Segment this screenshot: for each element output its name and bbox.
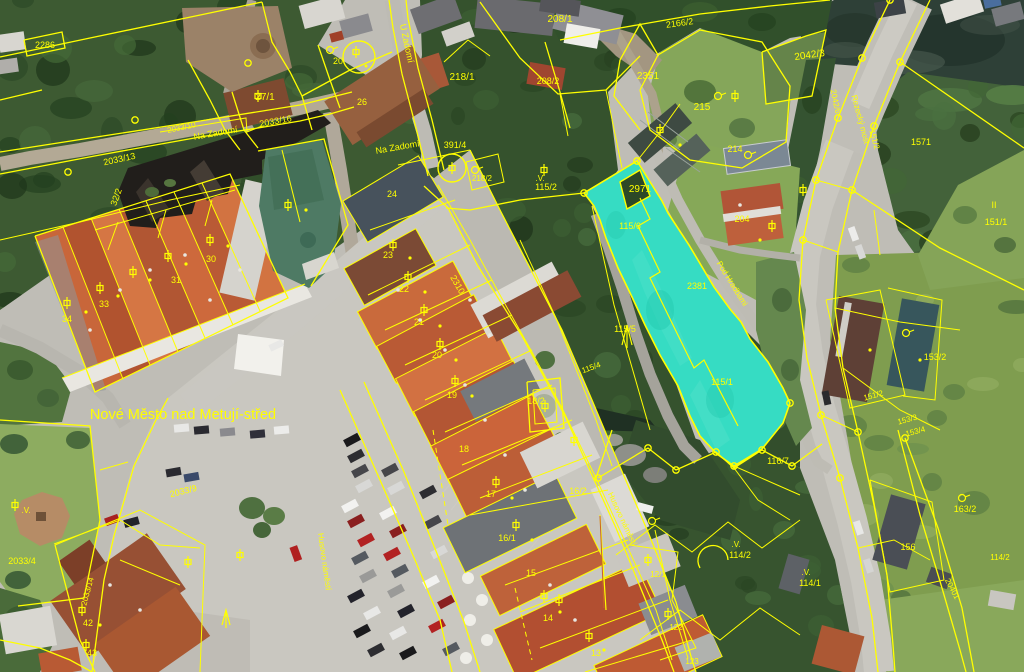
svg-text:.V.: .V. bbox=[21, 506, 30, 515]
svg-text:204: 204 bbox=[734, 214, 749, 224]
svg-text:20: 20 bbox=[333, 56, 343, 66]
svg-text:21: 21 bbox=[414, 317, 424, 327]
svg-text:163/2: 163/2 bbox=[954, 504, 977, 514]
svg-text:18: 18 bbox=[459, 444, 469, 454]
svg-text:16/2: 16/2 bbox=[569, 486, 587, 496]
svg-text:18/2: 18/2 bbox=[527, 396, 545, 406]
svg-text:27/1: 27/1 bbox=[255, 92, 275, 103]
svg-text:2971: 2971 bbox=[629, 184, 652, 195]
svg-text:2351: 2351 bbox=[637, 71, 660, 82]
svg-text:14: 14 bbox=[543, 613, 553, 623]
svg-text:122: 122 bbox=[669, 623, 683, 632]
svg-text:16/1: 16/1 bbox=[498, 533, 516, 543]
svg-text:22: 22 bbox=[399, 284, 409, 294]
svg-text:12/1: 12/1 bbox=[650, 570, 666, 579]
svg-text:17: 17 bbox=[486, 489, 496, 499]
svg-text:214: 214 bbox=[727, 144, 742, 154]
svg-text:31: 31 bbox=[171, 275, 181, 285]
svg-text:15: 15 bbox=[526, 568, 536, 578]
svg-text:33: 33 bbox=[99, 299, 109, 309]
svg-text:115/6: 115/6 bbox=[619, 221, 641, 231]
svg-text:115/1: 115/1 bbox=[711, 377, 733, 387]
svg-text:.V.: .V. bbox=[731, 540, 740, 549]
svg-text:208/1: 208/1 bbox=[547, 14, 572, 25]
svg-text:208/2: 208/2 bbox=[537, 76, 560, 86]
svg-text:153/2: 153/2 bbox=[924, 352, 947, 362]
svg-text:26: 26 bbox=[357, 97, 367, 107]
svg-text:II: II bbox=[991, 200, 996, 210]
svg-text:114/1: 114/1 bbox=[799, 578, 821, 588]
svg-text:.V.: .V. bbox=[801, 568, 810, 577]
svg-text:116/7: 116/7 bbox=[767, 456, 789, 466]
svg-text:42: 42 bbox=[83, 618, 93, 628]
svg-text:19: 19 bbox=[447, 390, 457, 400]
svg-text:151/1: 151/1 bbox=[985, 217, 1008, 227]
svg-text:20: 20 bbox=[432, 350, 442, 360]
svg-text:13: 13 bbox=[591, 648, 601, 658]
svg-text:391/4: 391/4 bbox=[444, 140, 467, 150]
svg-text:1571: 1571 bbox=[911, 137, 931, 147]
svg-text:Nové Město nad Metují-střed: Nové Město nad Metují-střed bbox=[90, 407, 276, 423]
svg-text:34: 34 bbox=[62, 314, 72, 324]
svg-text:215: 215 bbox=[694, 102, 711, 113]
svg-text:.V.: .V. bbox=[535, 174, 544, 183]
svg-text:156: 156 bbox=[900, 542, 915, 552]
svg-text:218/2: 218/2 bbox=[472, 174, 493, 183]
svg-text:114/2: 114/2 bbox=[729, 550, 751, 560]
svg-text:24: 24 bbox=[387, 189, 397, 199]
svg-text:115/2: 115/2 bbox=[535, 182, 557, 192]
svg-text:2033/4: 2033/4 bbox=[8, 556, 36, 566]
svg-text:30: 30 bbox=[206, 254, 216, 264]
svg-text:2286: 2286 bbox=[35, 40, 55, 50]
svg-text:123: 123 bbox=[685, 657, 699, 666]
svg-text:218/1: 218/1 bbox=[449, 72, 474, 83]
svg-text:2381: 2381 bbox=[687, 281, 707, 291]
svg-text:23: 23 bbox=[383, 250, 393, 260]
svg-text:114/2: 114/2 bbox=[990, 553, 1010, 562]
svg-text:43: 43 bbox=[87, 648, 97, 658]
